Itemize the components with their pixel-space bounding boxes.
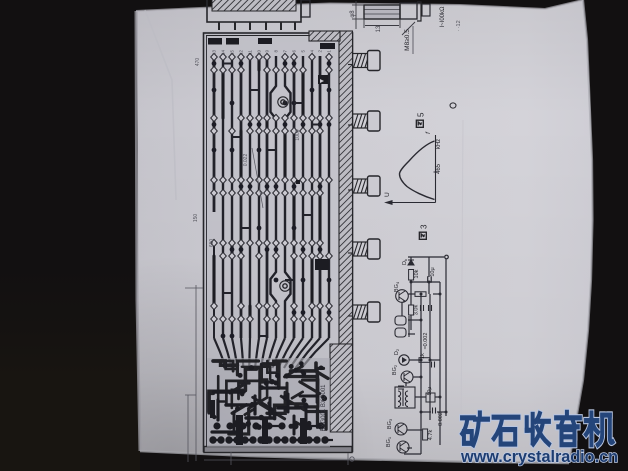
svg-text:0.022: 0.022 xyxy=(243,154,249,167)
svg-text:U: U xyxy=(384,192,391,197)
svg-text:5: 5 xyxy=(417,112,426,117)
svg-text:BG4: BG4 xyxy=(394,281,400,292)
svg-text:13: 13 xyxy=(376,25,382,32)
svg-text:kHz: kHz xyxy=(436,139,442,149)
svg-text:Dk: Dk xyxy=(402,259,408,265)
svg-text:BXG001 BXG001: BXG001 BXG001 xyxy=(321,384,327,432)
svg-text:3.0k: 3.0k xyxy=(414,305,420,316)
svg-text:610: 610 xyxy=(209,239,215,248)
svg-text:D2: D2 xyxy=(394,348,400,355)
svg-text:BG2: BG2 xyxy=(392,364,398,375)
svg-text:50μ: 50μ xyxy=(427,387,433,396)
svg-text:≈0.002: ≈0.002 xyxy=(423,333,429,350)
svg-text:10μ: 10μ xyxy=(430,267,436,276)
svg-text:0.002: 0.002 xyxy=(438,412,444,426)
svg-text:I~I00kΩ: I~I00kΩ xyxy=(440,6,446,28)
svg-text:150: 150 xyxy=(193,214,199,223)
svg-text:3: 3 xyxy=(420,224,429,229)
svg-text:4.7k: 4.7k xyxy=(428,430,434,441)
svg-text:www.crystalradio.cn: www.crystalradio.cn xyxy=(460,447,618,466)
svg-text:· ·12: · ·12 xyxy=(456,20,462,31)
svg-text:465: 465 xyxy=(436,163,442,174)
svg-text:10k: 10k xyxy=(414,269,420,278)
svg-text:M8≥0.5: M8≥0.5 xyxy=(404,29,411,51)
svg-text:1k: 1k xyxy=(420,353,426,359)
svg-text:BG1: BG1 xyxy=(386,436,392,447)
svg-text:BG3: BG3 xyxy=(387,418,393,429)
svg-text:1000: 1000 xyxy=(295,129,301,140)
svg-text:φ8: φ8 xyxy=(350,10,356,18)
svg-text:470: 470 xyxy=(195,58,201,67)
